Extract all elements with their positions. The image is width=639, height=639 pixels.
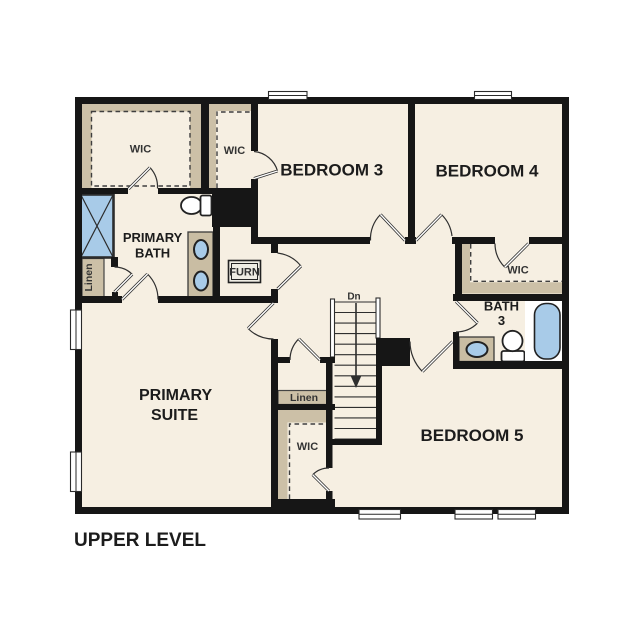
svg-text:WIC: WIC <box>224 145 245 157</box>
svg-text:PRIMARY: PRIMARY <box>139 387 213 404</box>
svg-text:BEDROOM 4: BEDROOM 4 <box>436 162 540 181</box>
svg-text:WIC: WIC <box>130 144 151 156</box>
svg-text:BATH: BATH <box>484 299 519 314</box>
svg-text:WIC: WIC <box>507 265 528 277</box>
svg-text:3: 3 <box>498 313 505 328</box>
svg-text:Dn: Dn <box>347 292 360 303</box>
svg-text:UPPER LEVEL: UPPER LEVEL <box>74 530 206 551</box>
svg-text:BEDROOM 5: BEDROOM 5 <box>421 426 524 445</box>
svg-text:PRIMARY: PRIMARY <box>123 230 183 245</box>
svg-text:BEDROOM 3: BEDROOM 3 <box>280 161 383 180</box>
svg-text:Linen: Linen <box>83 264 95 292</box>
svg-text:SUITE: SUITE <box>151 407 198 424</box>
svg-text:Linen: Linen <box>290 392 318 404</box>
svg-text:BATH: BATH <box>135 246 170 261</box>
svg-text:FURN: FURN <box>229 267 260 279</box>
svg-text:WIC: WIC <box>297 441 318 453</box>
